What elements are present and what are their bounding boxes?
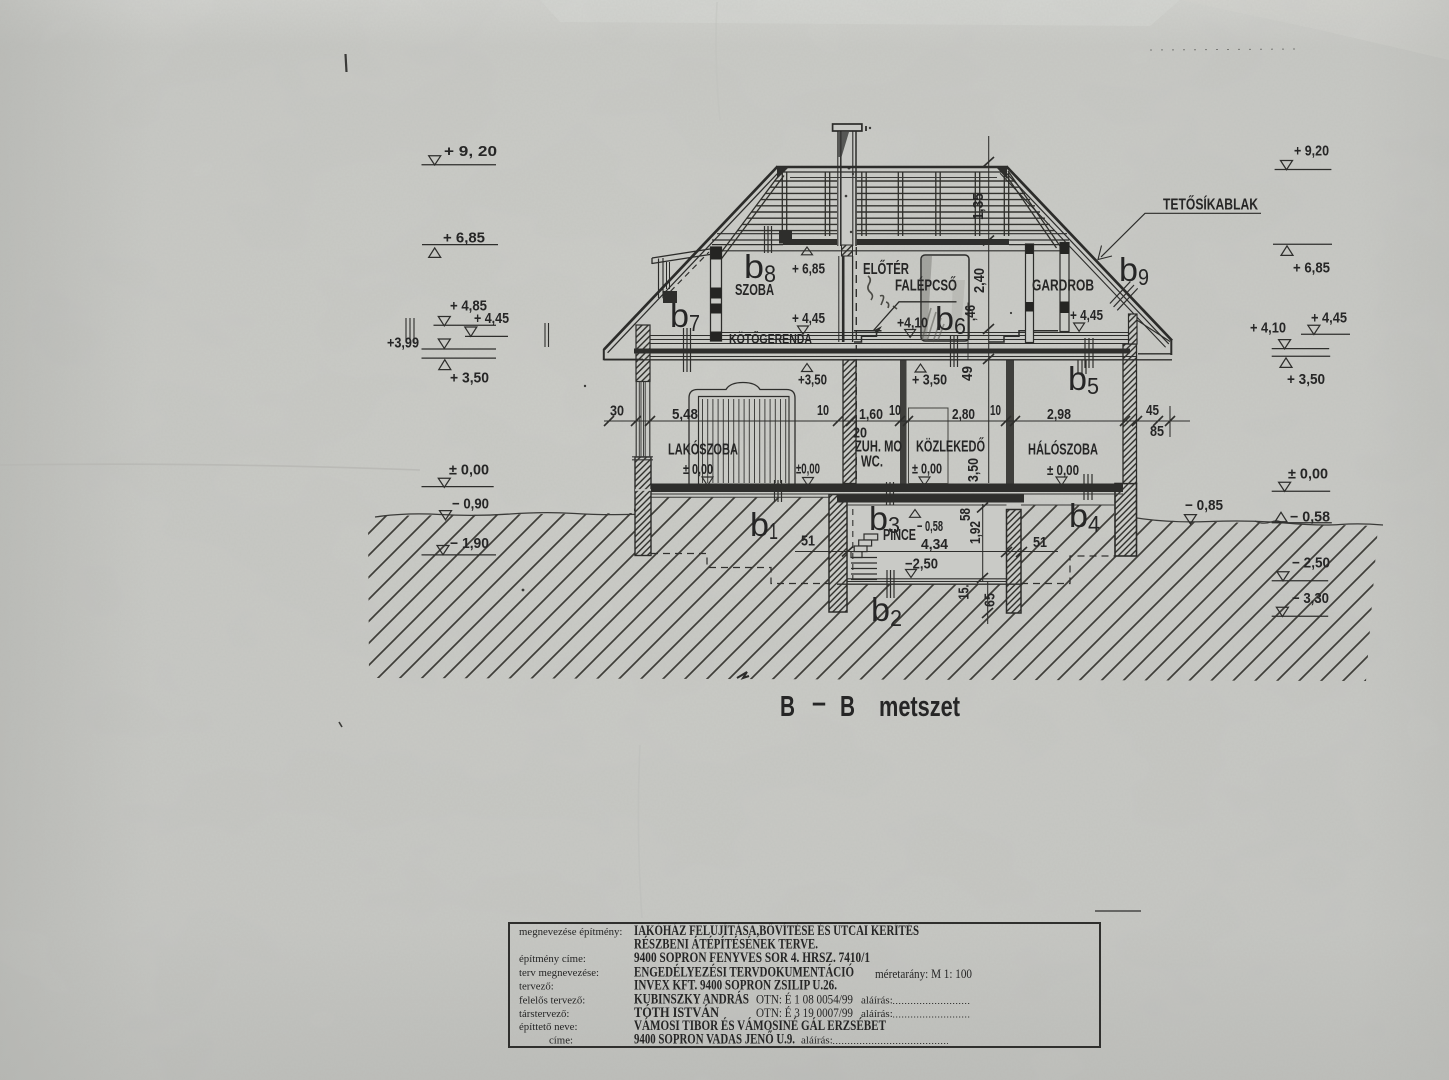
svg-text:1,60: 1,60: [859, 407, 883, 423]
svg-text:FALÉPCSŐ: FALÉPCSŐ: [895, 277, 957, 295]
svg-text:+ 6,85: + 6,85: [1293, 261, 1330, 277]
svg-text:terv megnevezése:: terv megnevezése:: [519, 967, 599, 979]
svg-text:65: 65: [983, 593, 999, 607]
svg-text:címe:: címe:: [549, 1034, 573, 1046]
svg-text:+ 4,45: + 4,45: [474, 311, 509, 327]
svg-text:49: 49: [960, 366, 976, 381]
svg-text:–: –: [812, 687, 826, 719]
svg-text:3,50: 3,50: [966, 458, 982, 482]
svg-text:2,98: 2,98: [1047, 407, 1071, 423]
svg-text:+ 3,50: + 3,50: [1287, 372, 1325, 388]
svg-text:5,48: 5,48: [672, 407, 698, 423]
svg-text:LAKÓSZOBA: LAKÓSZOBA: [668, 441, 738, 459]
svg-text:10: 10: [889, 403, 901, 419]
svg-text:45: 45: [1146, 403, 1159, 419]
svg-text:− 0,58: − 0,58: [1290, 510, 1330, 526]
svg-text:+ 6,85: + 6,85: [792, 262, 825, 278]
svg-text:+ 3,50: + 3,50: [450, 371, 489, 387]
svg-text:1,35: 1,35: [971, 193, 987, 220]
svg-text:metszet: metszet: [879, 691, 960, 723]
svg-text:− 0,85: − 0,85: [1185, 498, 1223, 514]
svg-text:9400 SOPRON VADAS JENŐ U.9.: 9400 SOPRON VADAS JENŐ U.9.: [634, 1031, 795, 1048]
svg-text:− 2,50: − 2,50: [1292, 556, 1330, 572]
svg-text:15.: 15.: [957, 585, 973, 600]
svg-text:+3,50: +3,50: [798, 373, 827, 389]
svg-text:± 0,00: ± 0,00: [1288, 467, 1328, 483]
svg-text:10: 10: [817, 403, 829, 419]
svg-text:KÖZLEKEDŐ: KÖZLEKEDŐ: [916, 438, 985, 456]
svg-text:51: 51: [1033, 535, 1047, 551]
svg-text:+ 4,45: + 4,45: [792, 311, 825, 327]
svg-text:aláírás:: aláírás:: [861, 995, 893, 1007]
svg-text:± 0,00: ± 0,00: [683, 462, 713, 478]
svg-text:85: 85: [1150, 424, 1164, 440]
svg-text:megnevezése építmény:: megnevezése építmény:: [519, 926, 622, 938]
svg-text:GARDROB: GARDROB: [1032, 278, 1094, 295]
svg-text:58: 58: [958, 508, 974, 521]
svg-text:2,40: 2,40: [972, 268, 988, 293]
svg-text:±0,00: ±0,00: [796, 462, 820, 478]
svg-text:B: B: [840, 691, 855, 723]
svg-text:WC.: WC.: [861, 454, 883, 471]
svg-text:− 3,30: − 3,30: [1292, 591, 1329, 607]
svg-text:+ 9, 20: + 9, 20: [444, 144, 497, 160]
svg-text:méretarány: M 1: 100: méretarány: M 1: 100: [875, 966, 972, 981]
svg-text:− 0,58: − 0,58: [917, 519, 943, 535]
svg-text:aláírás:: aláírás:: [861, 1008, 893, 1020]
svg-text:10: 10: [990, 403, 1001, 419]
svg-text:építtető neve:: építtető neve:: [519, 1021, 577, 1033]
svg-text:+4,10: +4,10: [897, 316, 928, 332]
svg-text:aláírás:: aláírás:: [801, 1035, 833, 1047]
svg-text:+ 9,20: + 9,20: [1294, 144, 1329, 160]
svg-text:HÁLÓSZOBA: HÁLÓSZOBA: [1028, 441, 1098, 459]
svg-text:KÖTŐGERENDA: KÖTŐGERENDA: [729, 332, 812, 347]
svg-text:± 0,00: ± 0,00: [1047, 463, 1079, 479]
svg-text:+ 6,85: + 6,85: [443, 231, 485, 247]
svg-text:ELŐTÉR: ELŐTÉR: [863, 260, 909, 278]
svg-text:−2,50: −2,50: [905, 557, 938, 573]
svg-text:társtervező:: társtervező:: [519, 1008, 569, 1020]
svg-text:± 0,00: ± 0,00: [912, 462, 942, 478]
svg-text:+ 4,10: + 4,10: [1250, 321, 1286, 337]
svg-text:+ 3,50: + 3,50: [912, 373, 947, 389]
svg-text:TETŐSÍKABLAK: TETŐSÍKABLAK: [1163, 196, 1259, 214]
svg-text:1,92: 1,92: [968, 521, 984, 544]
svg-text:± 0,00: ± 0,00: [449, 463, 489, 479]
svg-text:20: 20: [853, 426, 867, 442]
svg-text:B: B: [780, 691, 795, 723]
svg-text:30: 30: [610, 404, 624, 420]
svg-text:4,34: 4,34: [921, 537, 948, 553]
svg-text:tervező:: tervező:: [519, 981, 554, 993]
svg-text:2,80: 2,80: [952, 407, 975, 423]
svg-text:építmény címe:: építmény címe:: [519, 953, 586, 965]
svg-text:51: 51: [801, 534, 815, 550]
svg-text:+3,99: +3,99: [387, 336, 419, 352]
svg-text:+ 4,45: + 4,45: [1070, 308, 1103, 324]
svg-text:− 0,90: − 0,90: [452, 497, 489, 513]
svg-text:felelős tervező:: felelős tervező:: [519, 994, 585, 1006]
svg-text:− 1,90: − 1,90: [450, 536, 489, 552]
svg-text:+ 4,45: + 4,45: [1311, 311, 1347, 327]
svg-text:OTN: É 3 19 0007/99: OTN: É 3 19 0007/99: [756, 1005, 853, 1020]
